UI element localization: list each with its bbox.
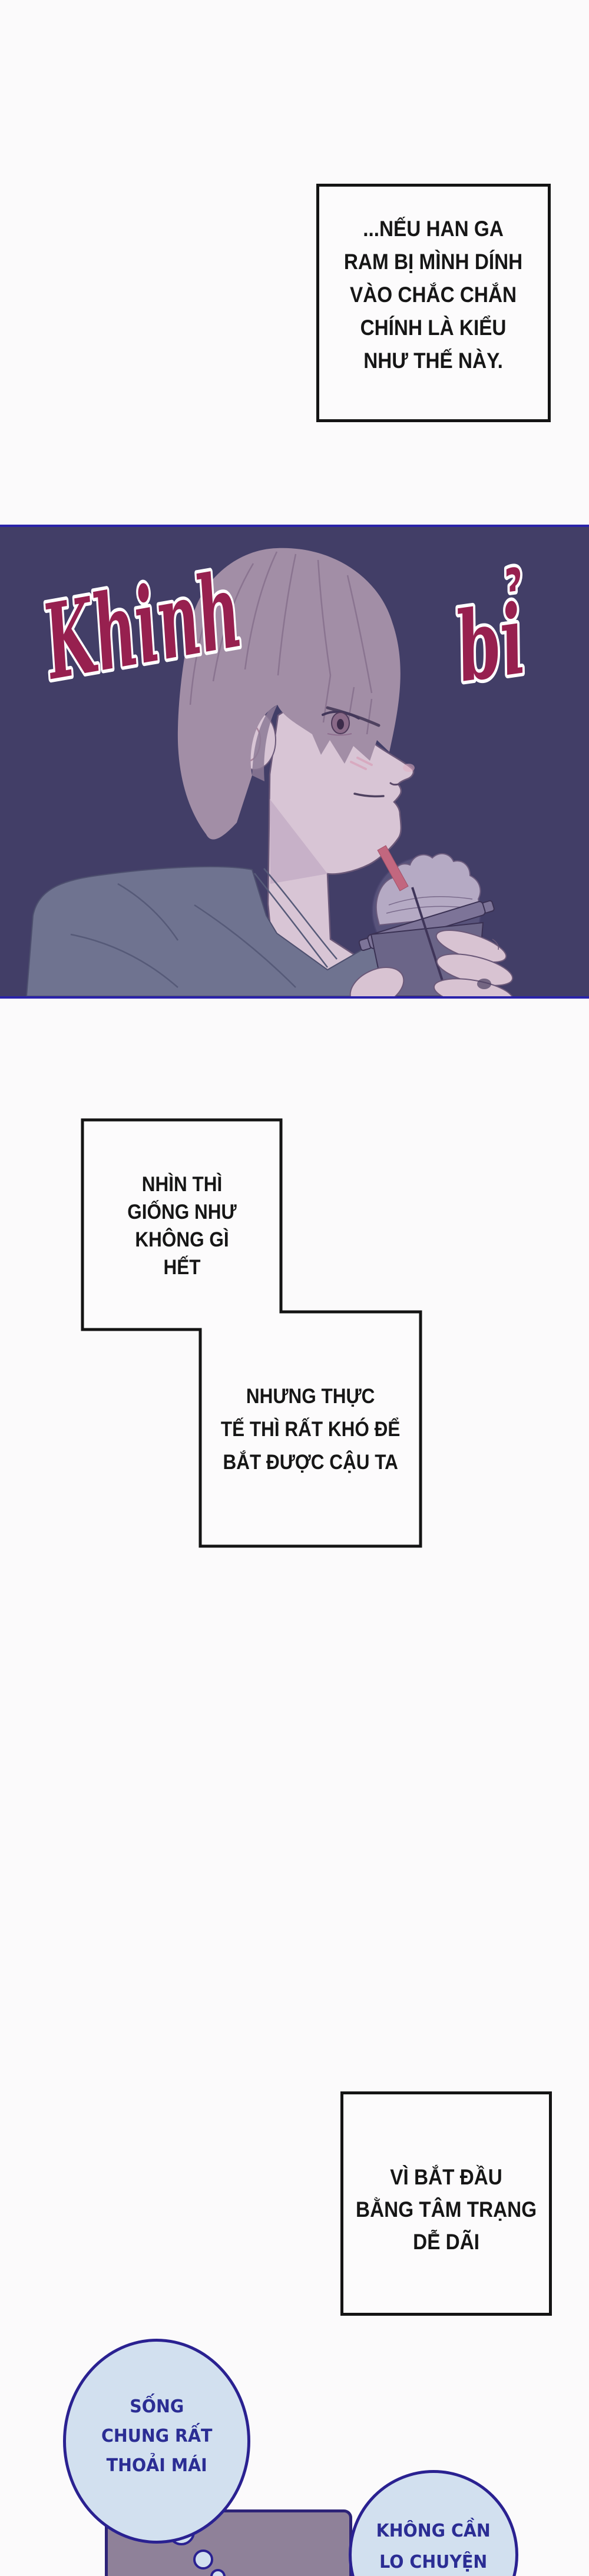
narration-line: HẾT <box>163 1254 200 1281</box>
sfx-bi: bỉ <box>447 567 537 704</box>
bubble-line: KHÔNG CẦN <box>376 2515 491 2547</box>
narration-line: BẰNG TÂM TRẠNG <box>356 2193 537 2226</box>
narration-box-look: NHÌN THÌ GIỐNG NHƯ KHÔNG GÌ HẾT <box>82 1171 281 1281</box>
bubble-text: KHÔNG CẦN LO CHUYỆN TRÁNH THAI <box>375 2473 491 2576</box>
narration-line: KHÔNG GÌ <box>135 1226 229 1254</box>
comic-page: ...NẾU HAN GA RAM BỊ MÌNH DÍNH VÀO CHẮC … <box>0 0 589 2576</box>
narration-line: VÌ BẮT ĐẦU <box>390 2161 502 2193</box>
narration-line: NHƯ THẾ NÀY. <box>364 344 504 377</box>
narration-line: NHƯNG THỰC <box>246 1380 375 1413</box>
narration-line: BẮT ĐƯỢC CẬU TA <box>223 1446 398 1479</box>
narration-line: NHÌN THÌ <box>141 1171 221 1198</box>
eye-pupil <box>337 719 344 730</box>
narration-line: RAM BỊ MÌNH DÍNH <box>344 246 522 279</box>
narration-text: NHƯNG THỰC TẾ THÌ RẤT KHÓ ĐỂ BẮT ĐƯỢC CẬ… <box>221 1380 400 1479</box>
narration-box-top: ...NẾU HAN GA RAM BỊ MÌNH DÍNH VÀO CHẮC … <box>316 184 551 422</box>
narration-line: VÀO CHẮC CHẮN <box>350 279 517 311</box>
narration-text: ...NẾU HAN GA RAM BỊ MÌNH DÍNH VÀO CHẮC … <box>344 213 522 377</box>
narration-line: ...NẾU HAN GA <box>363 213 504 246</box>
narration-line: GIỐNG NHƯ <box>127 1198 236 1226</box>
thought-bubble-living: SỐNG CHUNG RẤT THOẢI MÁI <box>63 2339 250 2544</box>
bubble-line: SỐNG <box>130 2392 184 2422</box>
character-illustration: Khinh bỉ <box>0 527 589 996</box>
bubble-line: THOẢI MÁI <box>106 2451 207 2481</box>
nose-blush <box>403 764 415 772</box>
bubble-line: CHUNG RẤT <box>101 2422 213 2451</box>
finger-gap-shadow <box>477 979 491 989</box>
narration-line: DỄ DÃI <box>413 2226 479 2258</box>
narration-box-because: VÌ BẮT ĐẦU BẰNG TÂM TRẠNG DỄ DÃI <box>340 2091 552 2316</box>
narration-text: NHÌN THÌ GIỐNG NHƯ KHÔNG GÌ HẾT <box>127 1171 236 1281</box>
bubble-text: SỐNG CHUNG RẤT THOẢI MÁI <box>101 2342 213 2481</box>
thought-bubble-dot <box>193 2550 213 2570</box>
narration-box-but: NHƯNG THỰC TẾ THÌ RẤT KHÓ ĐỂ BẮT ĐƯỢC CẬ… <box>200 1380 421 1479</box>
thought-bubble-worry: KHÔNG CẦN LO CHUYỆN TRÁNH THAI <box>349 2470 518 2576</box>
bubble-line: LO CHUYỆN <box>379 2547 487 2576</box>
narration-line: CHÍNH LÀ KIỂU <box>360 311 507 344</box>
narration-line: TẾ THÌ RẤT KHÓ ĐỂ <box>221 1413 400 1446</box>
bubble-merge-patch <box>167 2512 196 2532</box>
narration-text: VÌ BẮT ĐẦU BẰNG TÂM TRẠNG DỄ DÃI <box>356 2161 537 2258</box>
art-panel: Khinh bỉ <box>0 525 589 999</box>
